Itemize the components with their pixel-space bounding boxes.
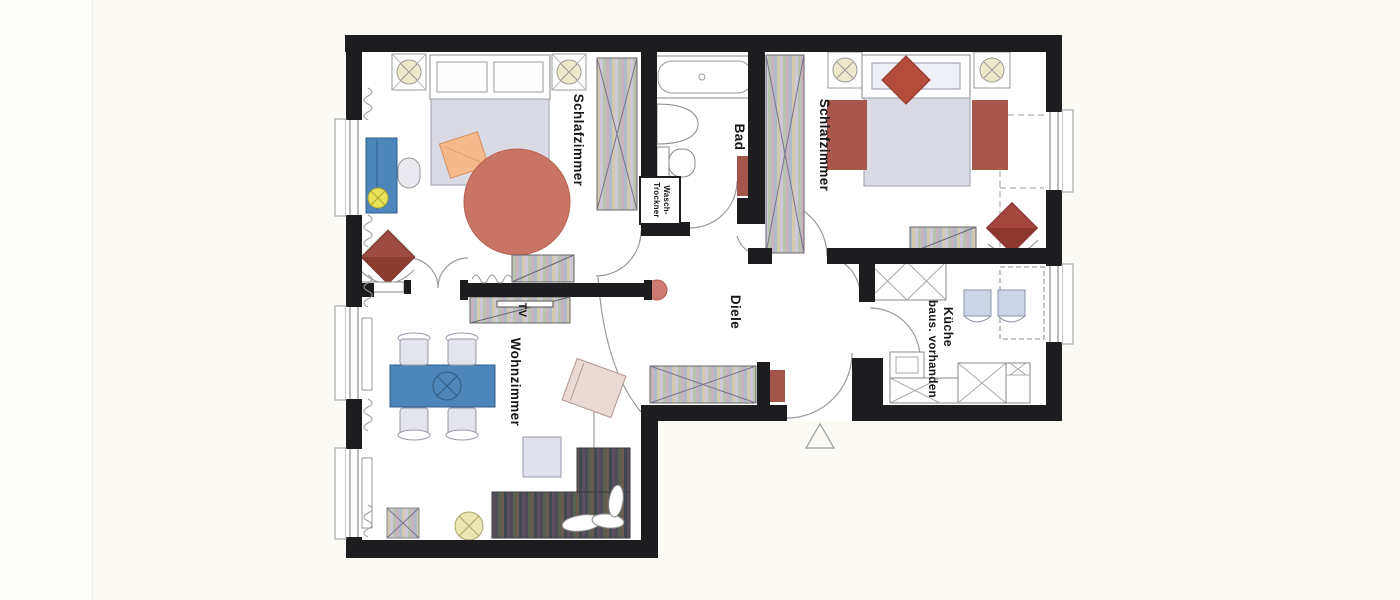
- coffee-table: [523, 437, 561, 477]
- window: [335, 306, 372, 400]
- wardrobe: [766, 55, 804, 253]
- radiator: [362, 458, 372, 528]
- wardrobe: [597, 58, 637, 210]
- floor-plan-drawing: Wasch- Trockner Schlafzimmer Bad Schlafz…: [0, 0, 1400, 600]
- tv-label: TV: [516, 303, 528, 318]
- bath-label: Bad: [732, 124, 747, 151]
- dining-chair: [446, 333, 478, 365]
- wall-right: [1046, 190, 1062, 266]
- wall-bedroom1-bath: [641, 52, 657, 178]
- mattress: [864, 98, 970, 186]
- wall-bedroom2-bottom: [748, 248, 772, 264]
- round-rug: [464, 149, 570, 255]
- hall-label: Diele: [728, 295, 743, 329]
- door-mat: [770, 370, 785, 402]
- entrance-triangle-icon: [806, 424, 834, 448]
- bedside-rug: [972, 100, 1008, 170]
- bedside-rug: [827, 100, 867, 170]
- bedroom2-label: Schlafzimmer: [817, 99, 832, 192]
- bathtub: [652, 56, 758, 98]
- side-table: [387, 508, 419, 538]
- wall-bedroom2-bottom: [827, 248, 1046, 264]
- washer-dryer-label-line1: Wasch-: [662, 185, 671, 214]
- window: [1046, 264, 1073, 344]
- wall-cap: [460, 280, 468, 300]
- window: [1046, 110, 1073, 192]
- hall-wardrobe: [650, 366, 756, 403]
- floor-lamp-icon: [455, 512, 483, 540]
- pillow: [437, 62, 487, 92]
- washer-dryer: Wasch- Trockner: [640, 177, 680, 224]
- nightstand-lamp-icon: [974, 52, 1010, 88]
- dining-chair: [446, 408, 478, 440]
- dining-chair: [398, 333, 430, 365]
- living-label: Wohnzimmer: [508, 338, 523, 427]
- window: [335, 448, 372, 539]
- floor-plan-page: Wasch- Trockner Schlafzimmer Bad Schlafz…: [0, 0, 1400, 600]
- kitchen-label-line1: Küche: [941, 307, 955, 347]
- wall-right: [1046, 342, 1062, 421]
- wall-right: [1046, 35, 1062, 112]
- wall-living-right: [641, 412, 658, 540]
- double-bed: [862, 55, 970, 186]
- wall-bath-bedroom2: [748, 52, 765, 198]
- drain-icon: [699, 74, 705, 80]
- window: [335, 119, 362, 216]
- desk-chair: [398, 158, 420, 188]
- wall-kitchen-bottom: [852, 405, 1062, 421]
- bedroom1-label: Schlafzimmer: [571, 94, 586, 187]
- radiator: [362, 318, 372, 390]
- wall-left: [346, 399, 362, 449]
- desk: [366, 138, 397, 213]
- wall-hall-stub: [757, 362, 770, 406]
- wall-bottom-living: [346, 540, 658, 558]
- wall-bedroom1-living: [465, 283, 651, 297]
- washer-dryer-label-line2: Trockner: [652, 182, 661, 217]
- wall-left: [346, 215, 362, 307]
- nightstand-lamp-icon: [552, 54, 586, 90]
- wall-cap: [644, 280, 652, 300]
- wall-kitchen-hall: [859, 264, 875, 302]
- nightstand-lamp-icon: [828, 52, 862, 88]
- nightstand-lamp-icon: [392, 54, 426, 90]
- dining-table: [390, 365, 495, 407]
- wall-left: [346, 35, 362, 120]
- pillow: [494, 62, 543, 92]
- toilet: [657, 147, 695, 177]
- kitchen-upper-cabinet: [868, 262, 946, 300]
- sideboard: [512, 255, 574, 282]
- wall-bath-corner: [737, 198, 765, 224]
- dining-chair: [398, 408, 430, 440]
- kitchen-label-line2: baus. vorhanden: [926, 300, 938, 398]
- wall-top: [345, 35, 1062, 52]
- wall-hall-bottom: [641, 405, 787, 421]
